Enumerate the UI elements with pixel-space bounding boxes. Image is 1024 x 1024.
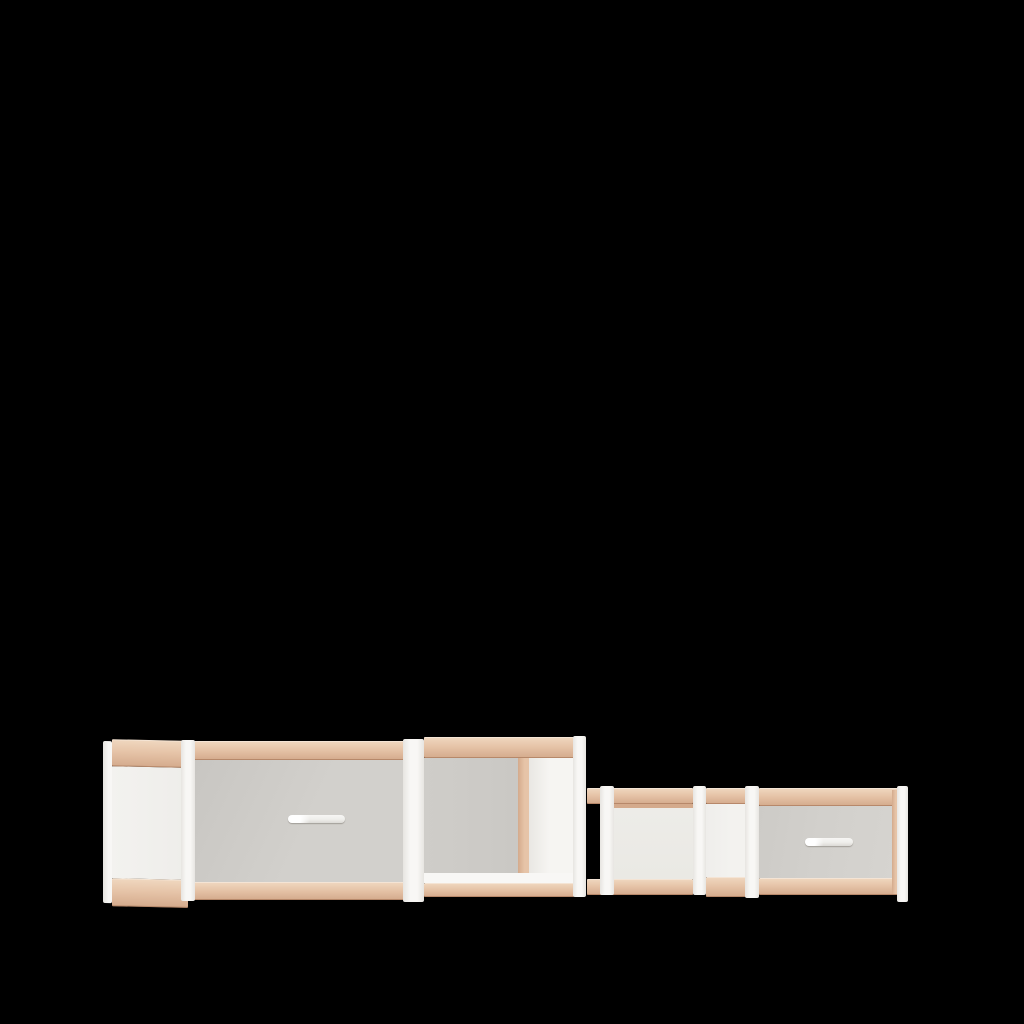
frame-post-right bbox=[573, 736, 586, 897]
drawer-front-small bbox=[759, 806, 898, 878]
modular-sideboard bbox=[0, 0, 1024, 1024]
drawer-handle bbox=[805, 838, 853, 846]
interior-side-wall bbox=[529, 758, 574, 873]
top-rail bbox=[424, 737, 574, 758]
side-corner-post bbox=[103, 741, 112, 903]
compartment-back-panel bbox=[614, 808, 693, 879]
left-side-panel bbox=[103, 739, 188, 908]
side-panel-face bbox=[706, 804, 746, 877]
tall-drawer-bay bbox=[181, 739, 424, 903]
frame-post-right bbox=[693, 786, 706, 895]
frame-post-left bbox=[745, 786, 759, 898]
frame-post-shared bbox=[403, 739, 424, 902]
tall-open-bay bbox=[424, 736, 586, 897]
low-drawer-bay bbox=[706, 786, 908, 902]
side-top-rail bbox=[112, 739, 188, 768]
top-rail bbox=[194, 741, 404, 760]
frame-post-left bbox=[181, 740, 195, 901]
bottom-rail bbox=[194, 882, 404, 900]
low-open-bay bbox=[587, 786, 706, 895]
compartment-back-panel bbox=[424, 758, 518, 873]
side-bottom-rail bbox=[112, 878, 188, 908]
frame-post-left bbox=[600, 786, 614, 895]
side-panel-face bbox=[112, 766, 188, 880]
drawer-handle bbox=[288, 815, 345, 823]
shelf-edge bbox=[424, 873, 574, 883]
bottom-rail bbox=[424, 883, 574, 897]
bottom-rail bbox=[759, 878, 898, 895]
side-bottom-rail bbox=[706, 877, 746, 897]
drawer-front-large bbox=[194, 760, 404, 882]
top-rail bbox=[759, 788, 898, 806]
side-top-rail bbox=[706, 788, 746, 804]
render-canvas bbox=[0, 0, 1024, 1024]
frame-post-right bbox=[897, 786, 908, 902]
interior-wood-edge bbox=[518, 758, 529, 873]
